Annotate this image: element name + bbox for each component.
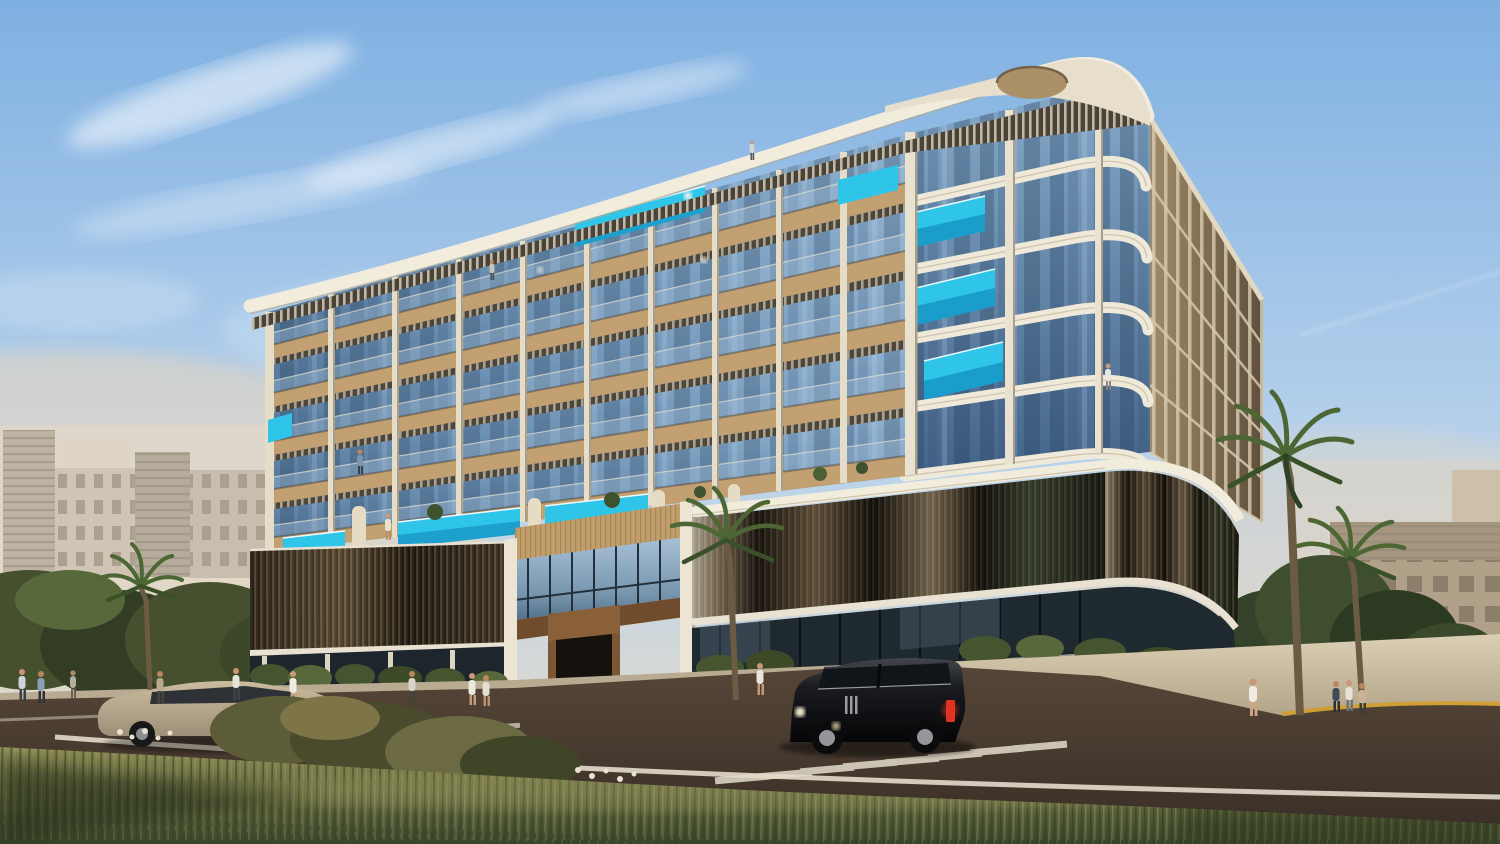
suv-headlight-glare xyxy=(795,707,805,717)
scene-canvas xyxy=(0,0,1500,844)
portal-column-left xyxy=(504,538,517,696)
architectural-rendering xyxy=(0,0,1500,844)
background-city-left xyxy=(0,425,270,585)
suv-fender-vents xyxy=(845,696,858,714)
suv-b-pillar xyxy=(878,664,880,688)
haze-overlay-left xyxy=(0,425,270,585)
